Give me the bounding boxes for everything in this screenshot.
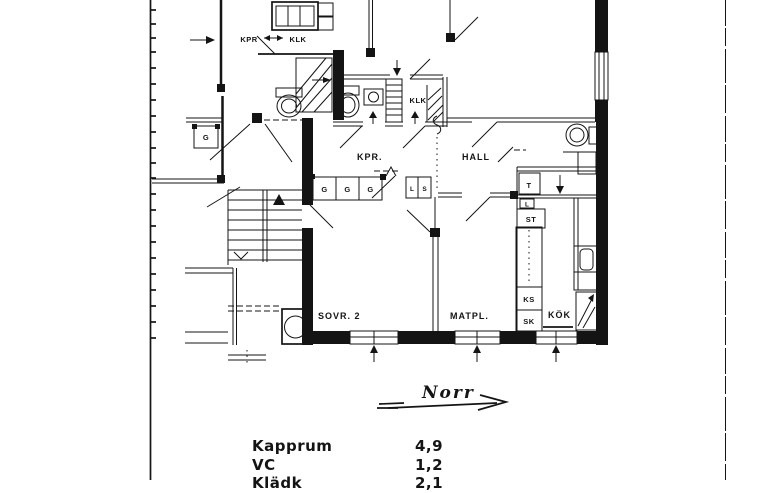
neighbor-unit: KPR KLK (190, 0, 344, 120)
legend-row: Klädk2,1 (252, 474, 482, 493)
wardrobe-label: G (344, 185, 350, 194)
cleaning-cabinet-label: ST (526, 215, 537, 224)
wardrobe-box-left: G (192, 124, 220, 148)
door-swing (340, 126, 362, 148)
wall-cap (310, 174, 315, 179)
room-label-neighbor-klk: KLK (290, 35, 307, 44)
freezer-label: SK (523, 317, 535, 326)
door-swing (407, 210, 430, 232)
door-arrow-icon (556, 175, 564, 194)
toilet-icon (566, 124, 597, 146)
linen-box: L (406, 177, 418, 198)
toilet-icon (276, 88, 302, 117)
door-arrow-icon (372, 167, 398, 198)
wardrobe-label: G (321, 185, 327, 194)
door-swing (410, 59, 430, 79)
stair-mark (234, 252, 248, 259)
wall-cap (217, 175, 225, 183)
wall-cap (217, 84, 225, 92)
door-arrow-icon (393, 60, 401, 76)
entry-arrow-icon (190, 36, 215, 44)
fridge-label: KS (523, 295, 534, 304)
window-arrow-icon (370, 345, 378, 362)
window (595, 52, 608, 100)
drying-cabinet-box: T (519, 173, 540, 194)
north-label: Norr (421, 383, 475, 403)
washbasin-icon (364, 89, 383, 105)
sink-icon (580, 249, 593, 270)
legend-room-name: Klädk (252, 474, 415, 492)
room-label-kpr: KPR. (357, 152, 383, 162)
legend-room-area: 1,2 (415, 456, 443, 474)
room-label-kok: KÖK (548, 310, 571, 320)
cleaning-cabinet-box: ST (517, 209, 545, 228)
wall-cap (446, 33, 455, 42)
room-label-matpl: MATPL. (450, 311, 489, 321)
shelf-hatch (427, 85, 443, 122)
double-arrow-icon (264, 35, 283, 41)
room-label-hall: HALL (462, 152, 490, 162)
door-swing (265, 124, 292, 162)
room-label-sovr2: SOVR. 2 (318, 311, 361, 321)
door-swing (498, 147, 513, 162)
kitchen-fixtures: KS SK KÖK (516, 227, 597, 331)
door-swing (472, 122, 497, 147)
legend-room-name: Kapprum (252, 437, 415, 455)
legend-row: VC1,2 (252, 456, 482, 475)
wardrobe-label: G (203, 133, 209, 142)
drying-cabinet-label: T (526, 181, 531, 190)
exterior-bottom-wall (303, 331, 608, 362)
door-swing (210, 124, 250, 160)
bathroom-klk: KLK (333, 0, 478, 148)
cabinet-s-label: S (422, 186, 427, 193)
wall-cap (252, 113, 262, 123)
linen-small-label: L (525, 202, 529, 209)
linen-small-box: L (520, 199, 534, 209)
door-swing (403, 126, 425, 148)
closet-shelves (296, 58, 332, 112)
kitchen-counter (574, 198, 597, 290)
porch-steps (228, 350, 266, 366)
floor-plan-page: KPR KLK G (0, 0, 768, 480)
wall-cap (430, 228, 440, 237)
legend-room-name: VC (252, 456, 415, 474)
wall-cap (510, 191, 518, 199)
door-swing (455, 17, 478, 40)
shelf-ladder (386, 79, 402, 122)
cabinet-s-box: S (418, 177, 431, 198)
north-arrow: Norr (377, 383, 506, 410)
fridge-box: KS (516, 287, 542, 310)
window (350, 331, 398, 344)
window (455, 331, 500, 344)
legend-room-area: 4,9 (415, 437, 443, 455)
legend-room-area: 2,1 (415, 474, 443, 492)
wall-cap (366, 48, 375, 57)
wardrobe-box-2: G (336, 177, 359, 200)
stove-icon (576, 292, 597, 330)
door-arrow-icon (369, 111, 377, 124)
window-arrow-icon (552, 345, 560, 362)
window-arrow-icon (473, 345, 481, 362)
door-swing (310, 205, 333, 228)
room-label-klk: KLK (410, 96, 427, 105)
legend-row: Kapprum4,9 (252, 437, 482, 456)
door-swing (466, 197, 490, 221)
partitions: G G G L S KPR. HALL SOVR. 2 MATPL. (302, 116, 490, 345)
wall-cap (380, 174, 386, 180)
floor-plan-drawing: KPR KLK G (0, 0, 768, 480)
freezer-box: SK (516, 310, 542, 331)
door-arrow-icon (411, 111, 419, 124)
linen-label: L (410, 186, 414, 193)
staircase (228, 190, 302, 265)
bathtub-icon (272, 2, 318, 30)
wardrobe-label: G (367, 185, 373, 194)
wardrobe-box-3: G (359, 177, 382, 200)
washbasin-icon (318, 3, 333, 30)
scan-edge-left (151, 0, 157, 480)
window (536, 331, 577, 344)
room-label-neighbor-kpr: KPR (240, 35, 257, 44)
wardrobe-box-1: G (313, 177, 336, 200)
room-area-legend: Kapprum4,9 VC1,2 Klädk2,1 (252, 437, 482, 493)
stair-block: G (152, 96, 309, 366)
